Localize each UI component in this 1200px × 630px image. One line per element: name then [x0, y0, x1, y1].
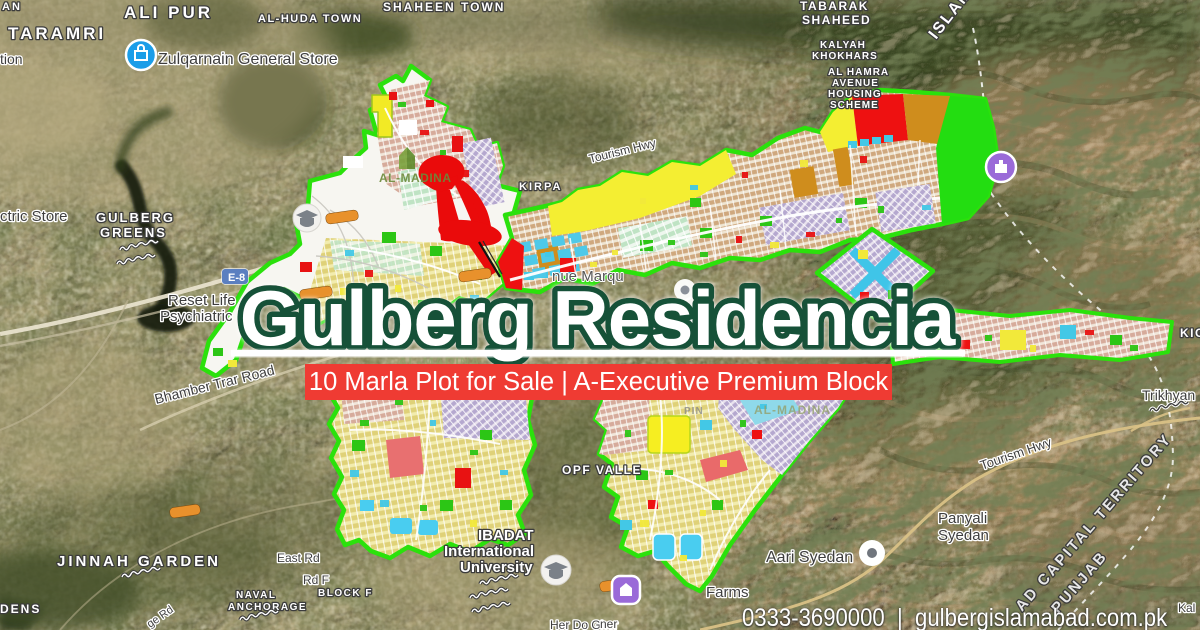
svg-text:Gulberg Residencia: Gulberg Residencia [240, 274, 956, 362]
